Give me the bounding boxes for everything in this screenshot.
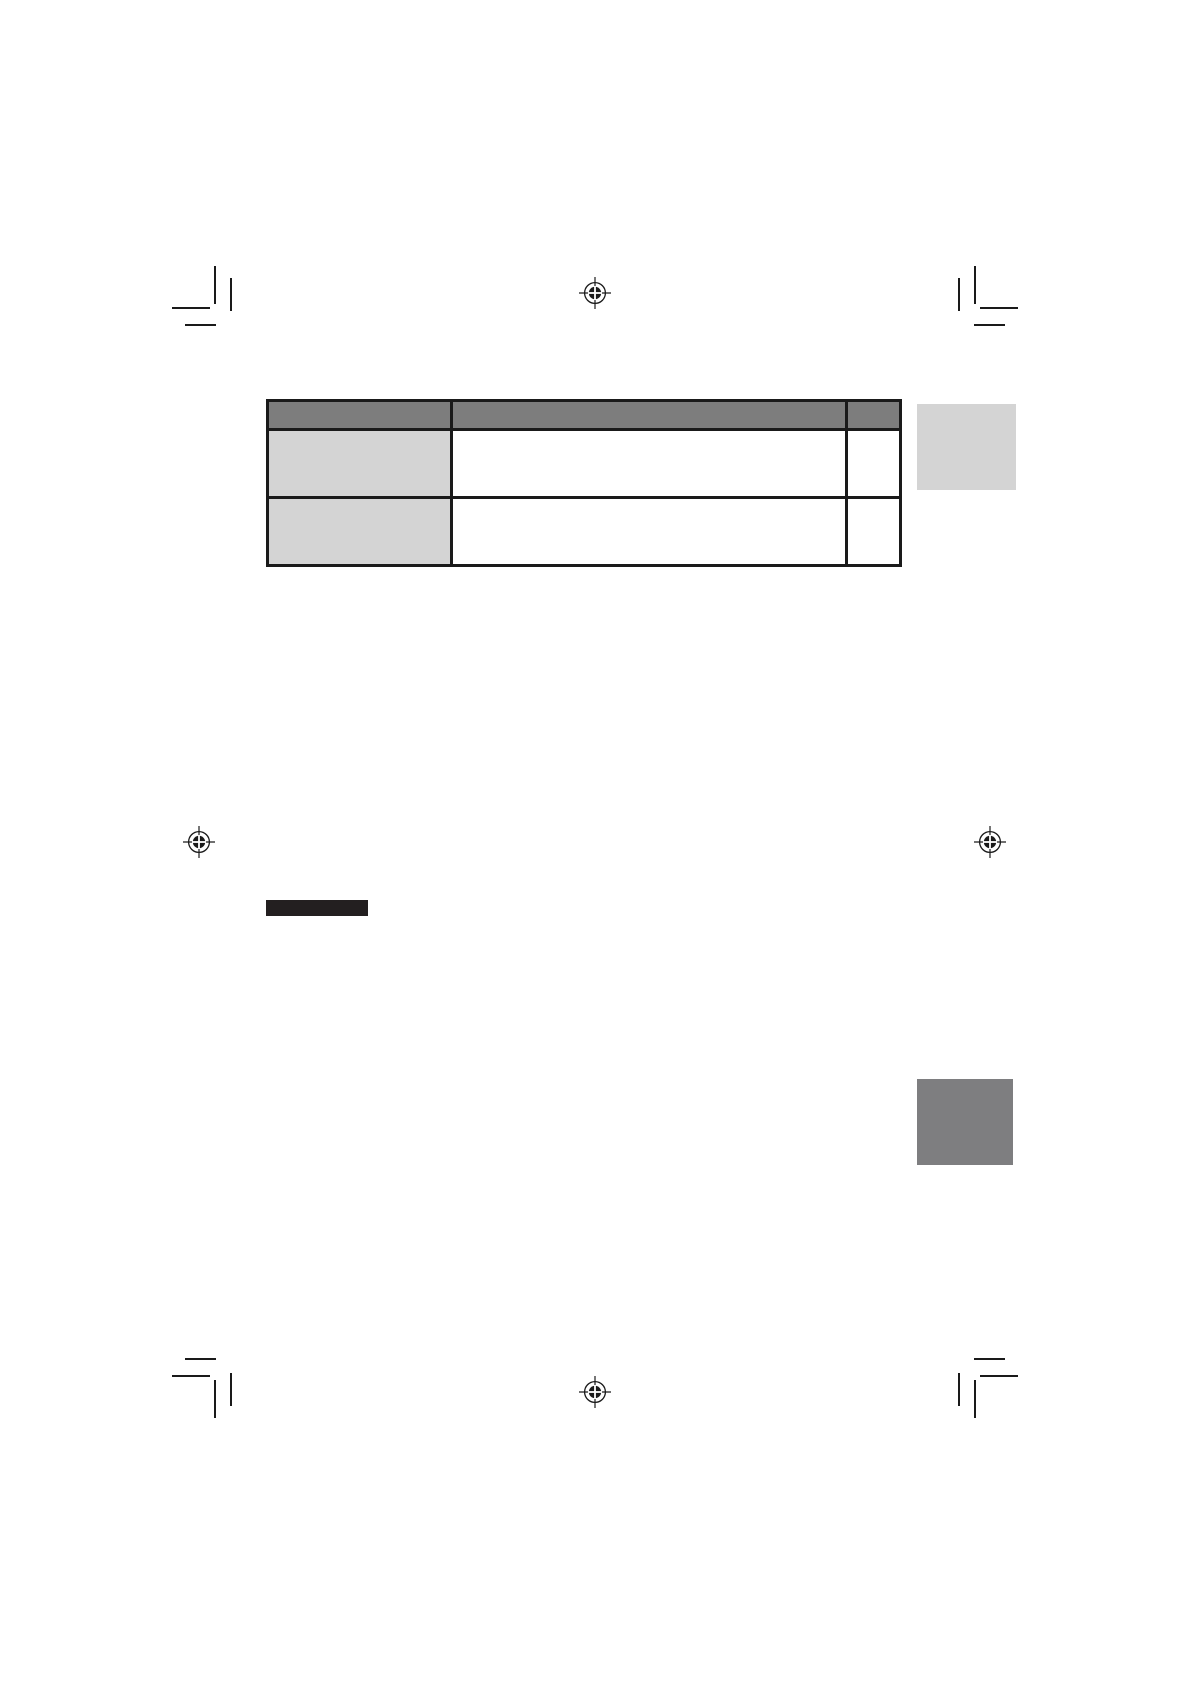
- crop-mark: [185, 324, 216, 326]
- table-cell: [847, 430, 901, 498]
- table-row-label-cell: [268, 498, 452, 566]
- table-cell: [452, 498, 847, 566]
- black-heading-bar: [266, 900, 368, 916]
- table-row: [268, 430, 901, 498]
- document-page: [0, 0, 1190, 1684]
- crop-mark: [172, 307, 210, 309]
- table-cell: [452, 430, 847, 498]
- crop-mark: [980, 307, 1018, 309]
- table-header-cell: [268, 401, 452, 430]
- crop-mark: [185, 1358, 216, 1360]
- table-cell: [847, 498, 901, 566]
- crop-mark: [958, 278, 960, 311]
- crop-mark: [230, 278, 232, 311]
- crop-mark: [974, 266, 976, 304]
- spec-table: [266, 399, 902, 567]
- section-tab-marker: [917, 1079, 1013, 1165]
- crop-mark: [974, 1380, 976, 1418]
- table-row: [268, 498, 901, 566]
- registration-mark-icon: [182, 825, 216, 859]
- registration-mark-icon: [578, 276, 612, 310]
- crop-mark: [230, 1373, 232, 1406]
- crop-mark: [980, 1375, 1018, 1377]
- crop-mark: [214, 1380, 216, 1418]
- registration-mark-icon: [973, 825, 1007, 859]
- crop-mark: [958, 1373, 960, 1406]
- table-header-cell: [452, 401, 847, 430]
- crop-mark: [172, 1375, 210, 1377]
- page-tab-marker: [917, 404, 1016, 490]
- crop-mark: [974, 1358, 1005, 1360]
- crop-mark: [214, 266, 216, 304]
- table-header-cell: [847, 401, 901, 430]
- registration-mark-icon: [578, 1375, 612, 1409]
- table-row-label-cell: [268, 430, 452, 498]
- table-header-row: [268, 401, 901, 430]
- crop-mark: [974, 324, 1005, 326]
